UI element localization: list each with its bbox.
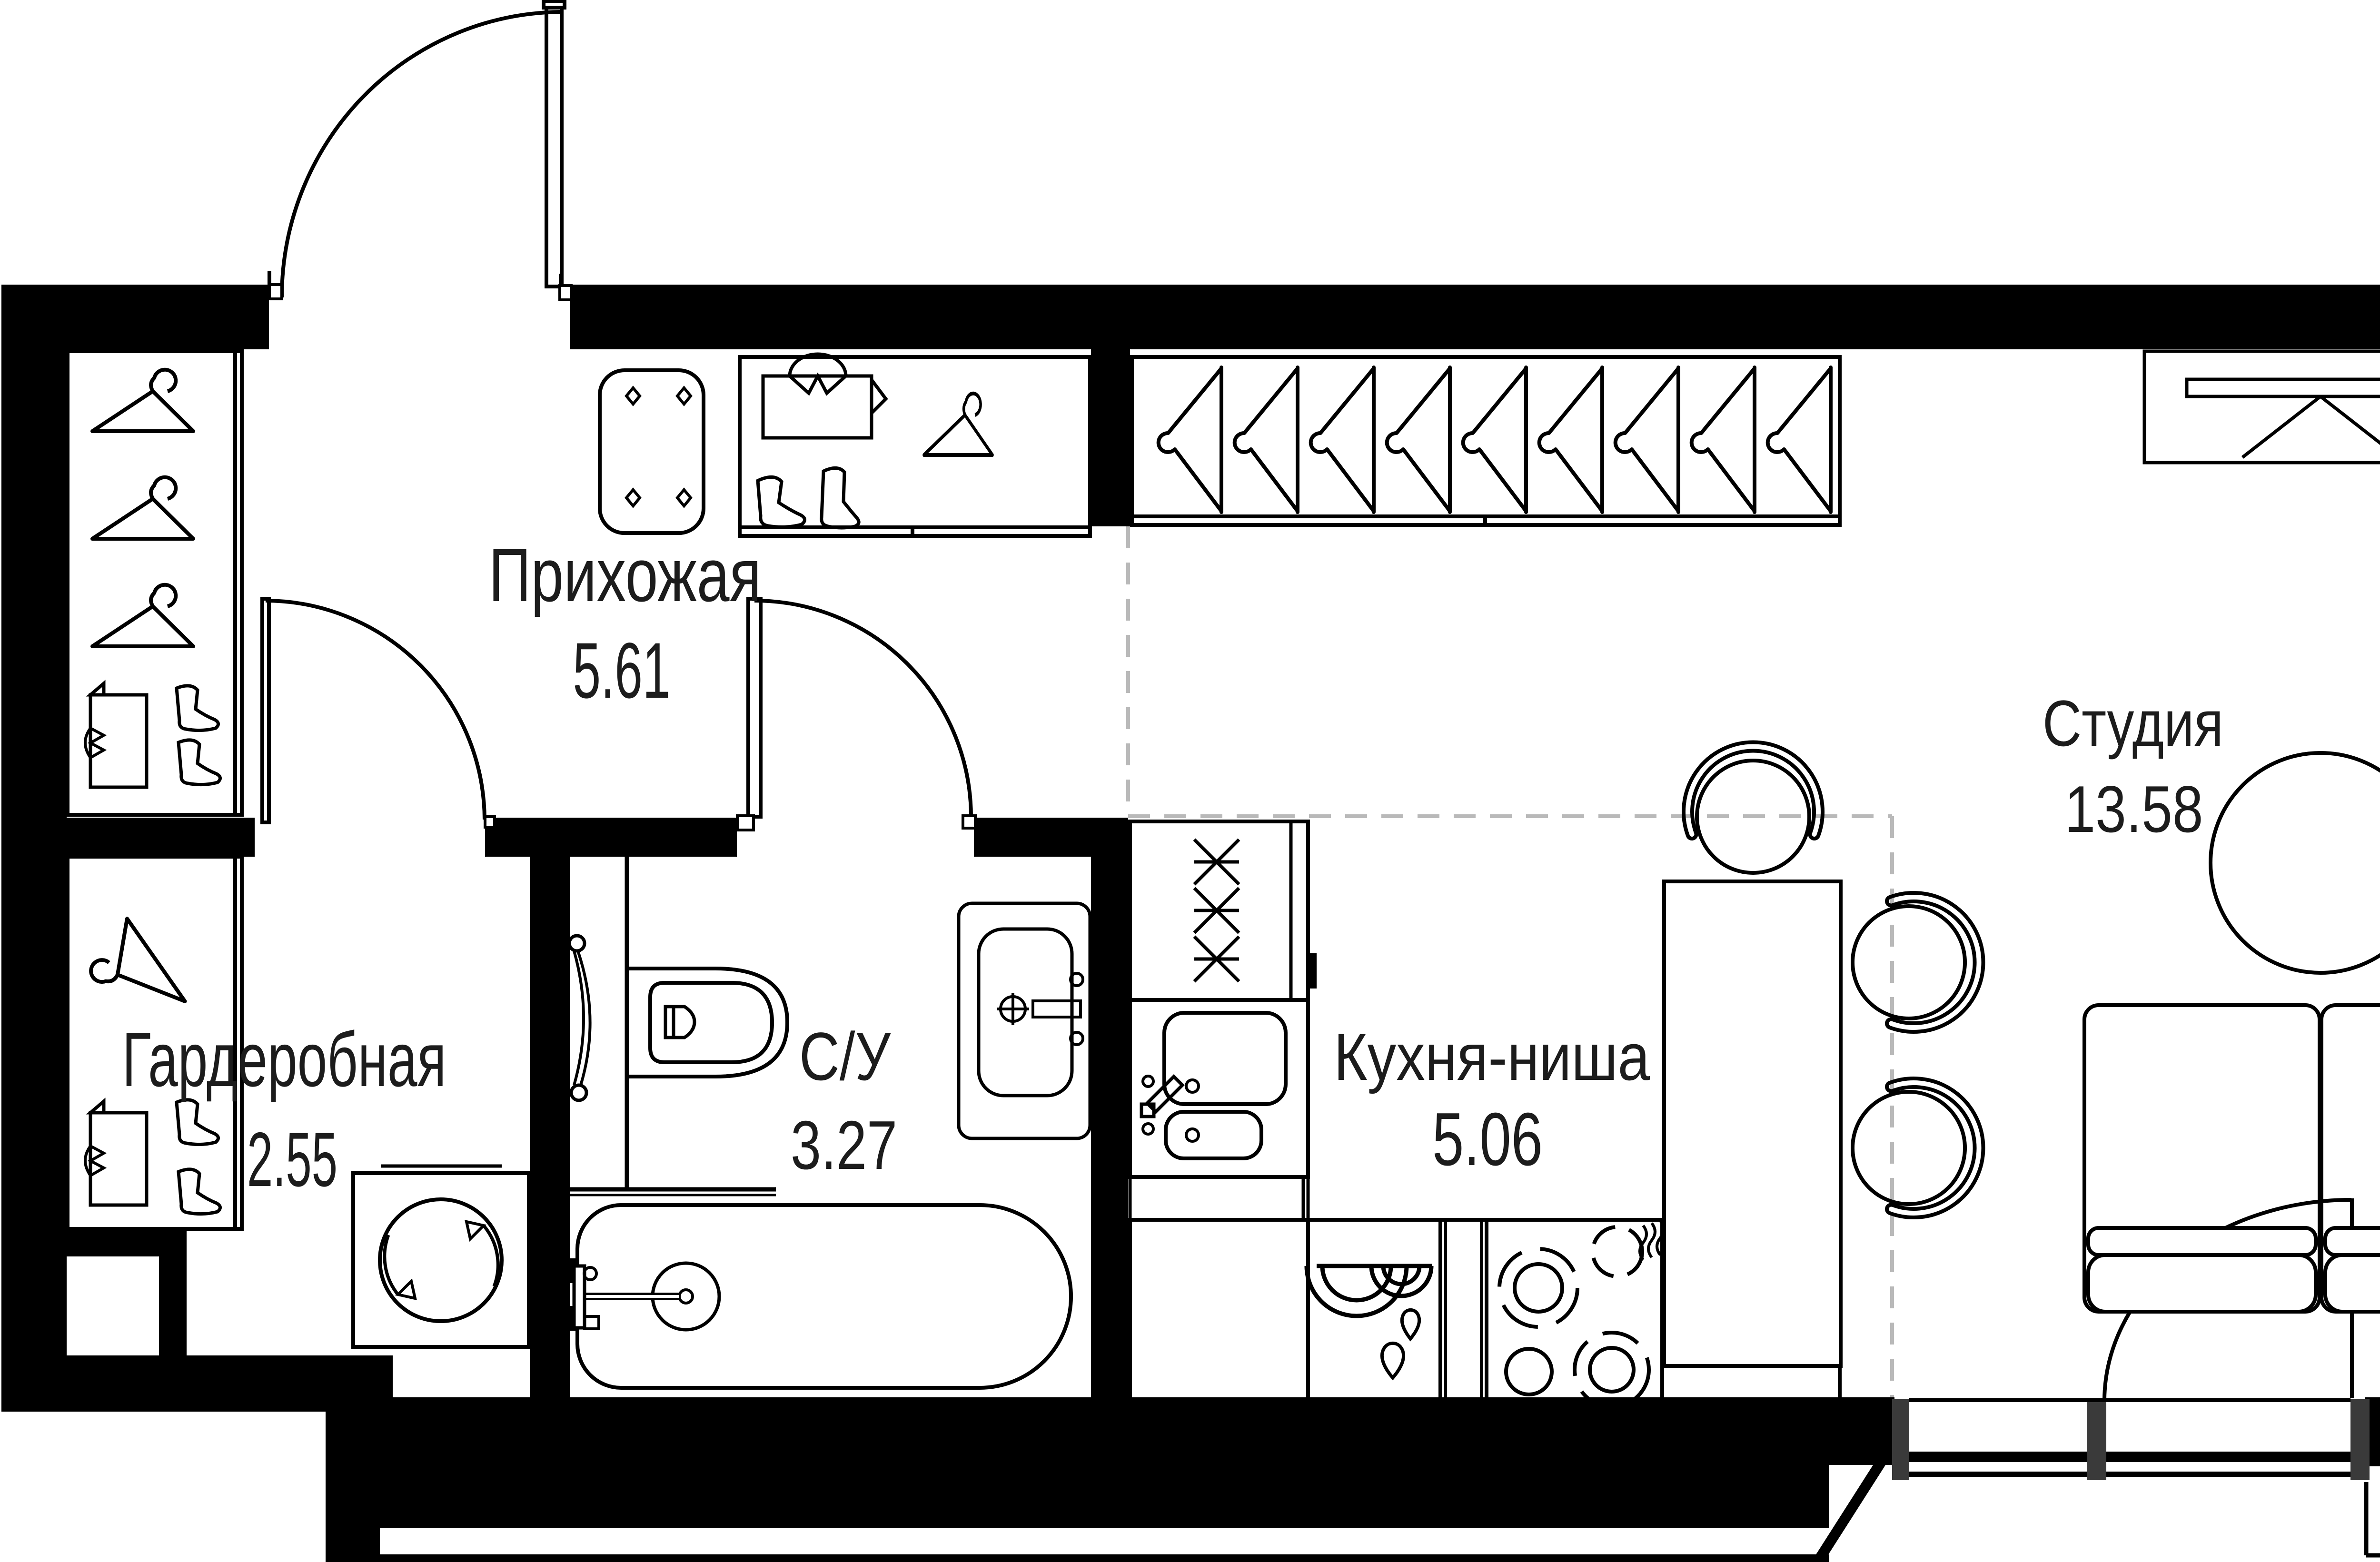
svg-text:13.58: 13.58 xyxy=(2065,772,2203,846)
svg-text:Прихожая: Прихожая xyxy=(489,533,762,617)
svg-text:Кухня-ниша: Кухня-ниша xyxy=(1334,1019,1650,1094)
svg-text:5.06: 5.06 xyxy=(1432,1097,1543,1181)
svg-text:С/У: С/У xyxy=(799,1019,891,1095)
svg-text:Студия: Студия xyxy=(2043,687,2223,760)
svg-text:5.61: 5.61 xyxy=(573,627,671,715)
svg-text:3.27: 3.27 xyxy=(791,1107,897,1184)
svg-text:2.55: 2.55 xyxy=(247,1117,337,1203)
svg-text:Гардеробная: Гардеробная xyxy=(122,1017,446,1103)
